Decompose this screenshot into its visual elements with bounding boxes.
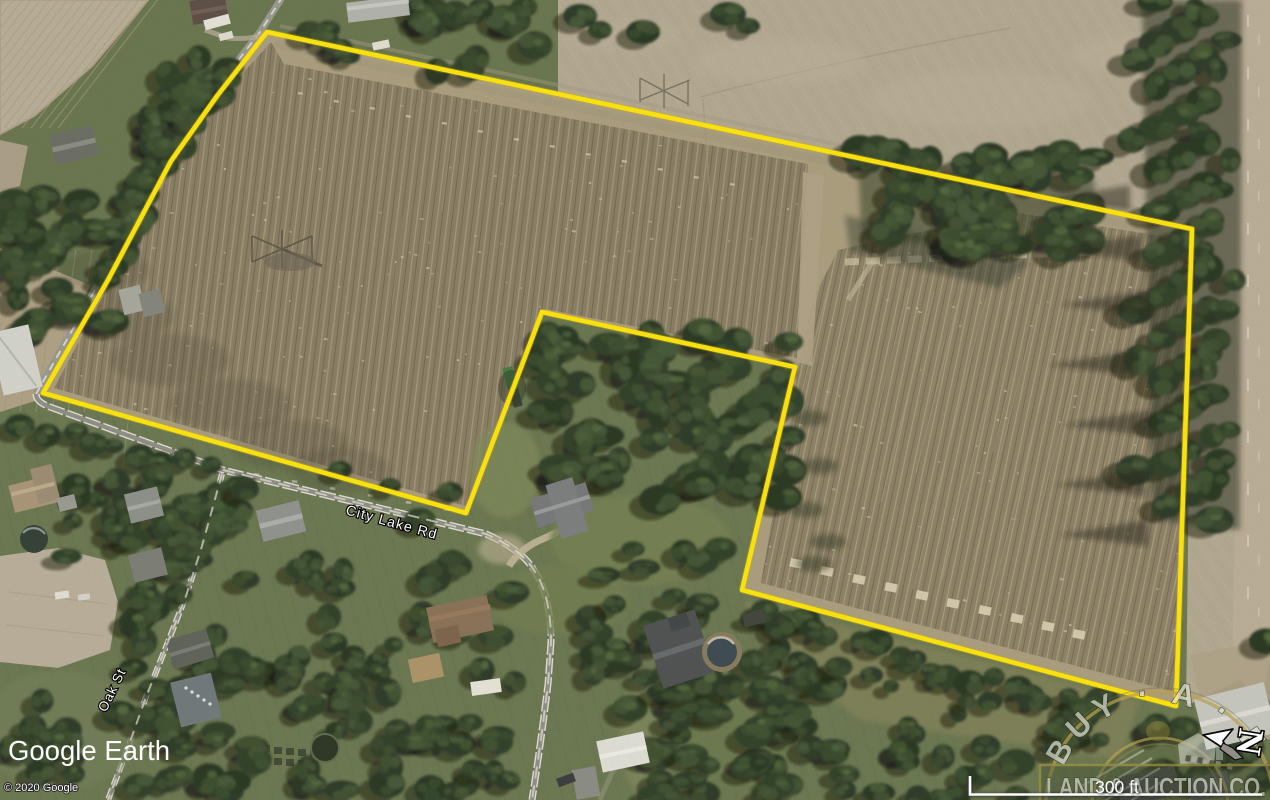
svg-text:© 2020 Google: © 2020 Google	[4, 782, 78, 794]
svg-text:300 ft: 300 ft	[1095, 777, 1139, 797]
svg-text:Google Earth: Google Earth	[8, 735, 170, 766]
